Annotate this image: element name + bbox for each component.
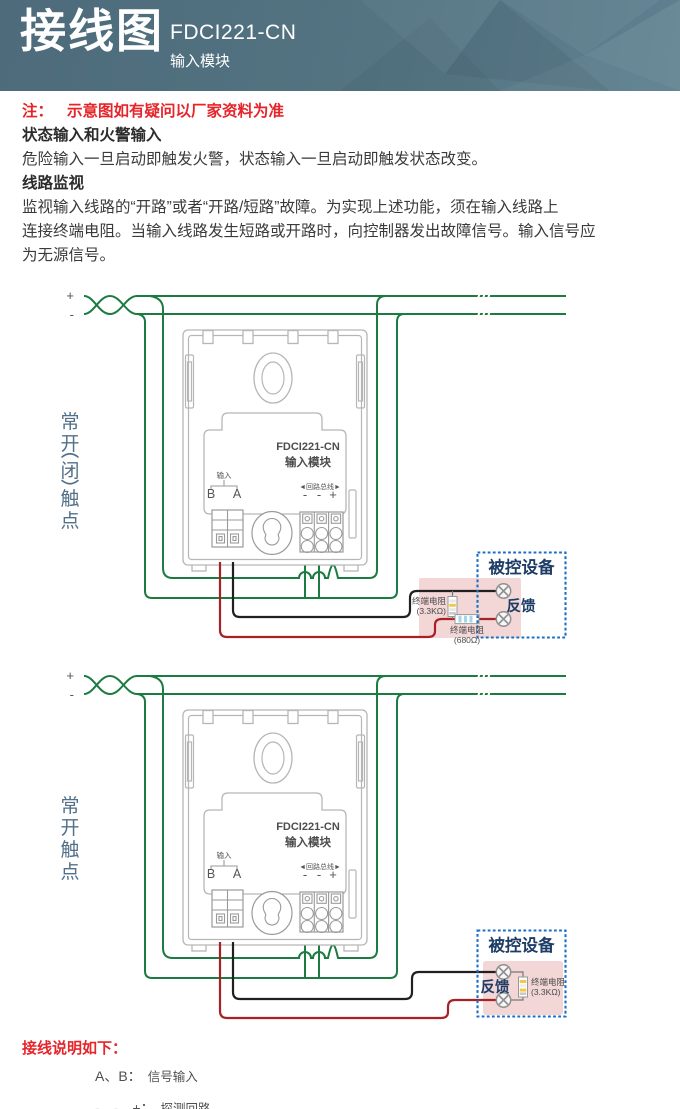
svg-text:开: 开 [60,434,79,455]
d1-bus-minus-1: - [303,487,307,502]
wiring-note-1-desc: 信号输入 [148,1070,198,1084]
page-title: 接线图 [20,8,164,54]
note-label: 注： [22,103,53,120]
wiring-note-line-1: A、B：信号输入 [95,1066,211,1086]
section-2-line-2: 连接终端电阻。当输入线路发生短路或开路时，向控制器发出故障信号。输入信号应 [22,220,666,244]
diagram-2: + - 常 开 触 点 FDCI221-CN 输入模块 输入 B A ◄回路总线… [60,668,566,1018]
d2-terminal-b: B [207,867,215,881]
d2-eol-resistor-value: (3.3KΩ) [531,987,561,997]
d2-module-model: FDCI221-CN [276,821,340,833]
page: 接线图 FDCI221-CN 输入模块 注：示意图如有疑问以厂家资料为准 状态输… [0,0,680,1109]
svg-text:开: 开 [60,818,79,839]
d2-bus-plus: + [329,867,337,882]
d1-device-title: 被控设备 [489,557,556,577]
svg-text:闭: 闭 [60,460,79,482]
d2-module-name: 输入模块 [285,835,331,849]
header-model-block: FDCI221-CN 输入模块 [170,21,296,71]
d2-eol-resistor-label: 终端电阻 [531,977,566,987]
d1-eol-resistor-value: (3.3KΩ) [416,606,446,616]
header-banner: 接线图 FDCI221-CN 输入模块 [0,0,680,91]
wiring-note-2-desc: 探测回路 [161,1102,211,1109]
section-1-line-1: 危险输入一旦启动即触发火警，状态输入一旦启动即触发状态改变。 [22,148,666,172]
header-subtitle: 输入模块 [170,50,296,71]
d1-bus-plus: + [329,487,337,502]
wiring-notes: 接线说明如下： A、B：信号输入 -、-、+：探测回路 [22,1037,211,1109]
d1-module-name: 输入模块 [285,455,331,469]
d2-wire-plus-label: + [66,668,74,683]
d1-feedback-label: 反馈 [507,597,536,615]
d1-wire-minus-label: - [70,307,74,322]
header-model: FDCI221-CN [170,21,296,45]
note-line: 注：示意图如有疑问以厂家资料为准 [22,100,666,124]
section-heading-2: 线路监视 [22,172,666,196]
svg-text:点: 点 [60,510,79,532]
d2-bus-minus-1: - [303,867,307,882]
d1-terminal-b: B [207,487,215,501]
wiring-notes-heading: 接线说明如下： [22,1037,211,1058]
d1-series-resistor-value: (680Ω) [454,635,480,645]
d1-wire-plus-label: + [66,288,74,303]
svg-text:常: 常 [60,411,79,433]
section-2-line-1: 监视输入线路的“开路”或者“开路/短路”故障。为实现上述功能，须在输入线路上 [22,196,666,220]
d1-module-model: FDCI221-CN [276,441,340,453]
d1-eol-resistor-label: 终端电阻 [412,596,447,606]
d1-contact-label: 常 开 闭 触 点 [60,411,79,532]
wiring-note-1-term: A、B： [95,1068,142,1084]
d1-bus-minus-2: - [317,487,321,502]
d2-device-title: 被控设备 [489,935,556,955]
description-block: 注：示意图如有疑问以厂家资料为准 状态输入和火警输入 危险输入一旦启动即触发火警… [22,100,666,268]
section-2-line-3: 为无源信号。 [22,244,666,268]
svg-text:触: 触 [60,839,79,861]
d1-series-resistor [455,615,479,624]
note-text: 示意图如有疑问以厂家资料为准 [67,103,284,120]
d2-signal-wire-red [220,942,496,1018]
wiring-note-line-2: -、-、+：探测回路 [95,1098,211,1109]
d2-bus-minus-2: - [317,867,321,882]
d2-screw-terminal-top [496,965,510,979]
d2-wire-minus-label: - [70,687,74,702]
svg-text:触: 触 [60,488,79,510]
svg-text:常: 常 [60,795,79,817]
d2-terminal-a: A [233,867,242,881]
wiring-diagrams: + - 常 开 闭 触 点 FDCI221-CN 输入模块 输入 B A [0,280,680,1050]
section-heading-1: 状态输入和火警输入 [22,124,666,148]
wiring-note-2-term: -、-、+： [95,1100,155,1109]
d1-input-group-label: 输入 [217,470,232,480]
d2-input-group-label: 输入 [217,850,232,860]
d1-series-resistor-label: 终端电阻 [450,625,485,635]
d1-screw-terminal-top [496,584,510,598]
d2-feedback-label: 反馈 [481,978,510,996]
d2-contact-label: 常 开 触 点 [60,795,79,883]
svg-text:点: 点 [60,861,79,883]
d1-terminal-a: A [233,487,242,501]
diagram-1: + - 常 开 闭 触 点 FDCI221-CN 输入模块 输入 B A [60,288,566,645]
d2-signal-wire-black [233,942,496,999]
